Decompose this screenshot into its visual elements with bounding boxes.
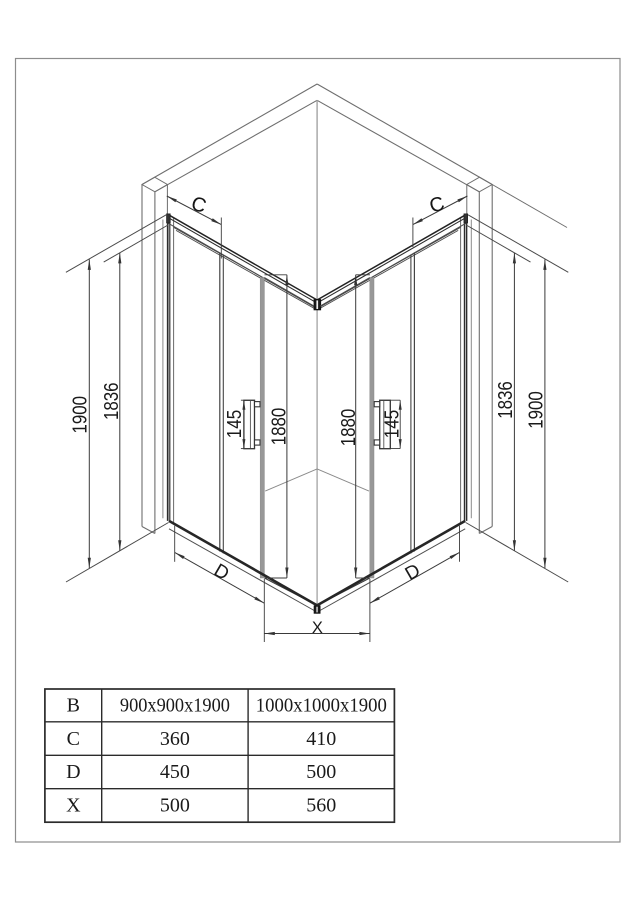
svg-text:560: 560 [306,795,336,817]
svg-text:1880: 1880 [268,408,290,446]
svg-text:410: 410 [306,728,336,750]
svg-text:1836: 1836 [101,383,123,421]
svg-text:B: B [67,695,80,717]
svg-text:145: 145 [224,410,246,439]
svg-text:145: 145 [382,410,404,439]
svg-text:1000x1000x1900: 1000x1000x1900 [256,695,387,717]
svg-text:450: 450 [160,761,190,783]
svg-text:X: X [312,619,323,637]
svg-text:1900: 1900 [70,396,92,434]
svg-text:D: D [66,761,80,783]
svg-text:1880: 1880 [338,409,360,447]
svg-text:900x900x1900: 900x900x1900 [120,695,230,717]
svg-text:C: C [67,728,80,750]
svg-text:1900: 1900 [525,391,547,429]
svg-text:360: 360 [160,728,190,750]
svg-text:X: X [66,795,81,817]
svg-text:500: 500 [160,795,190,817]
svg-text:500: 500 [306,761,336,783]
svg-text:1836: 1836 [495,381,517,419]
